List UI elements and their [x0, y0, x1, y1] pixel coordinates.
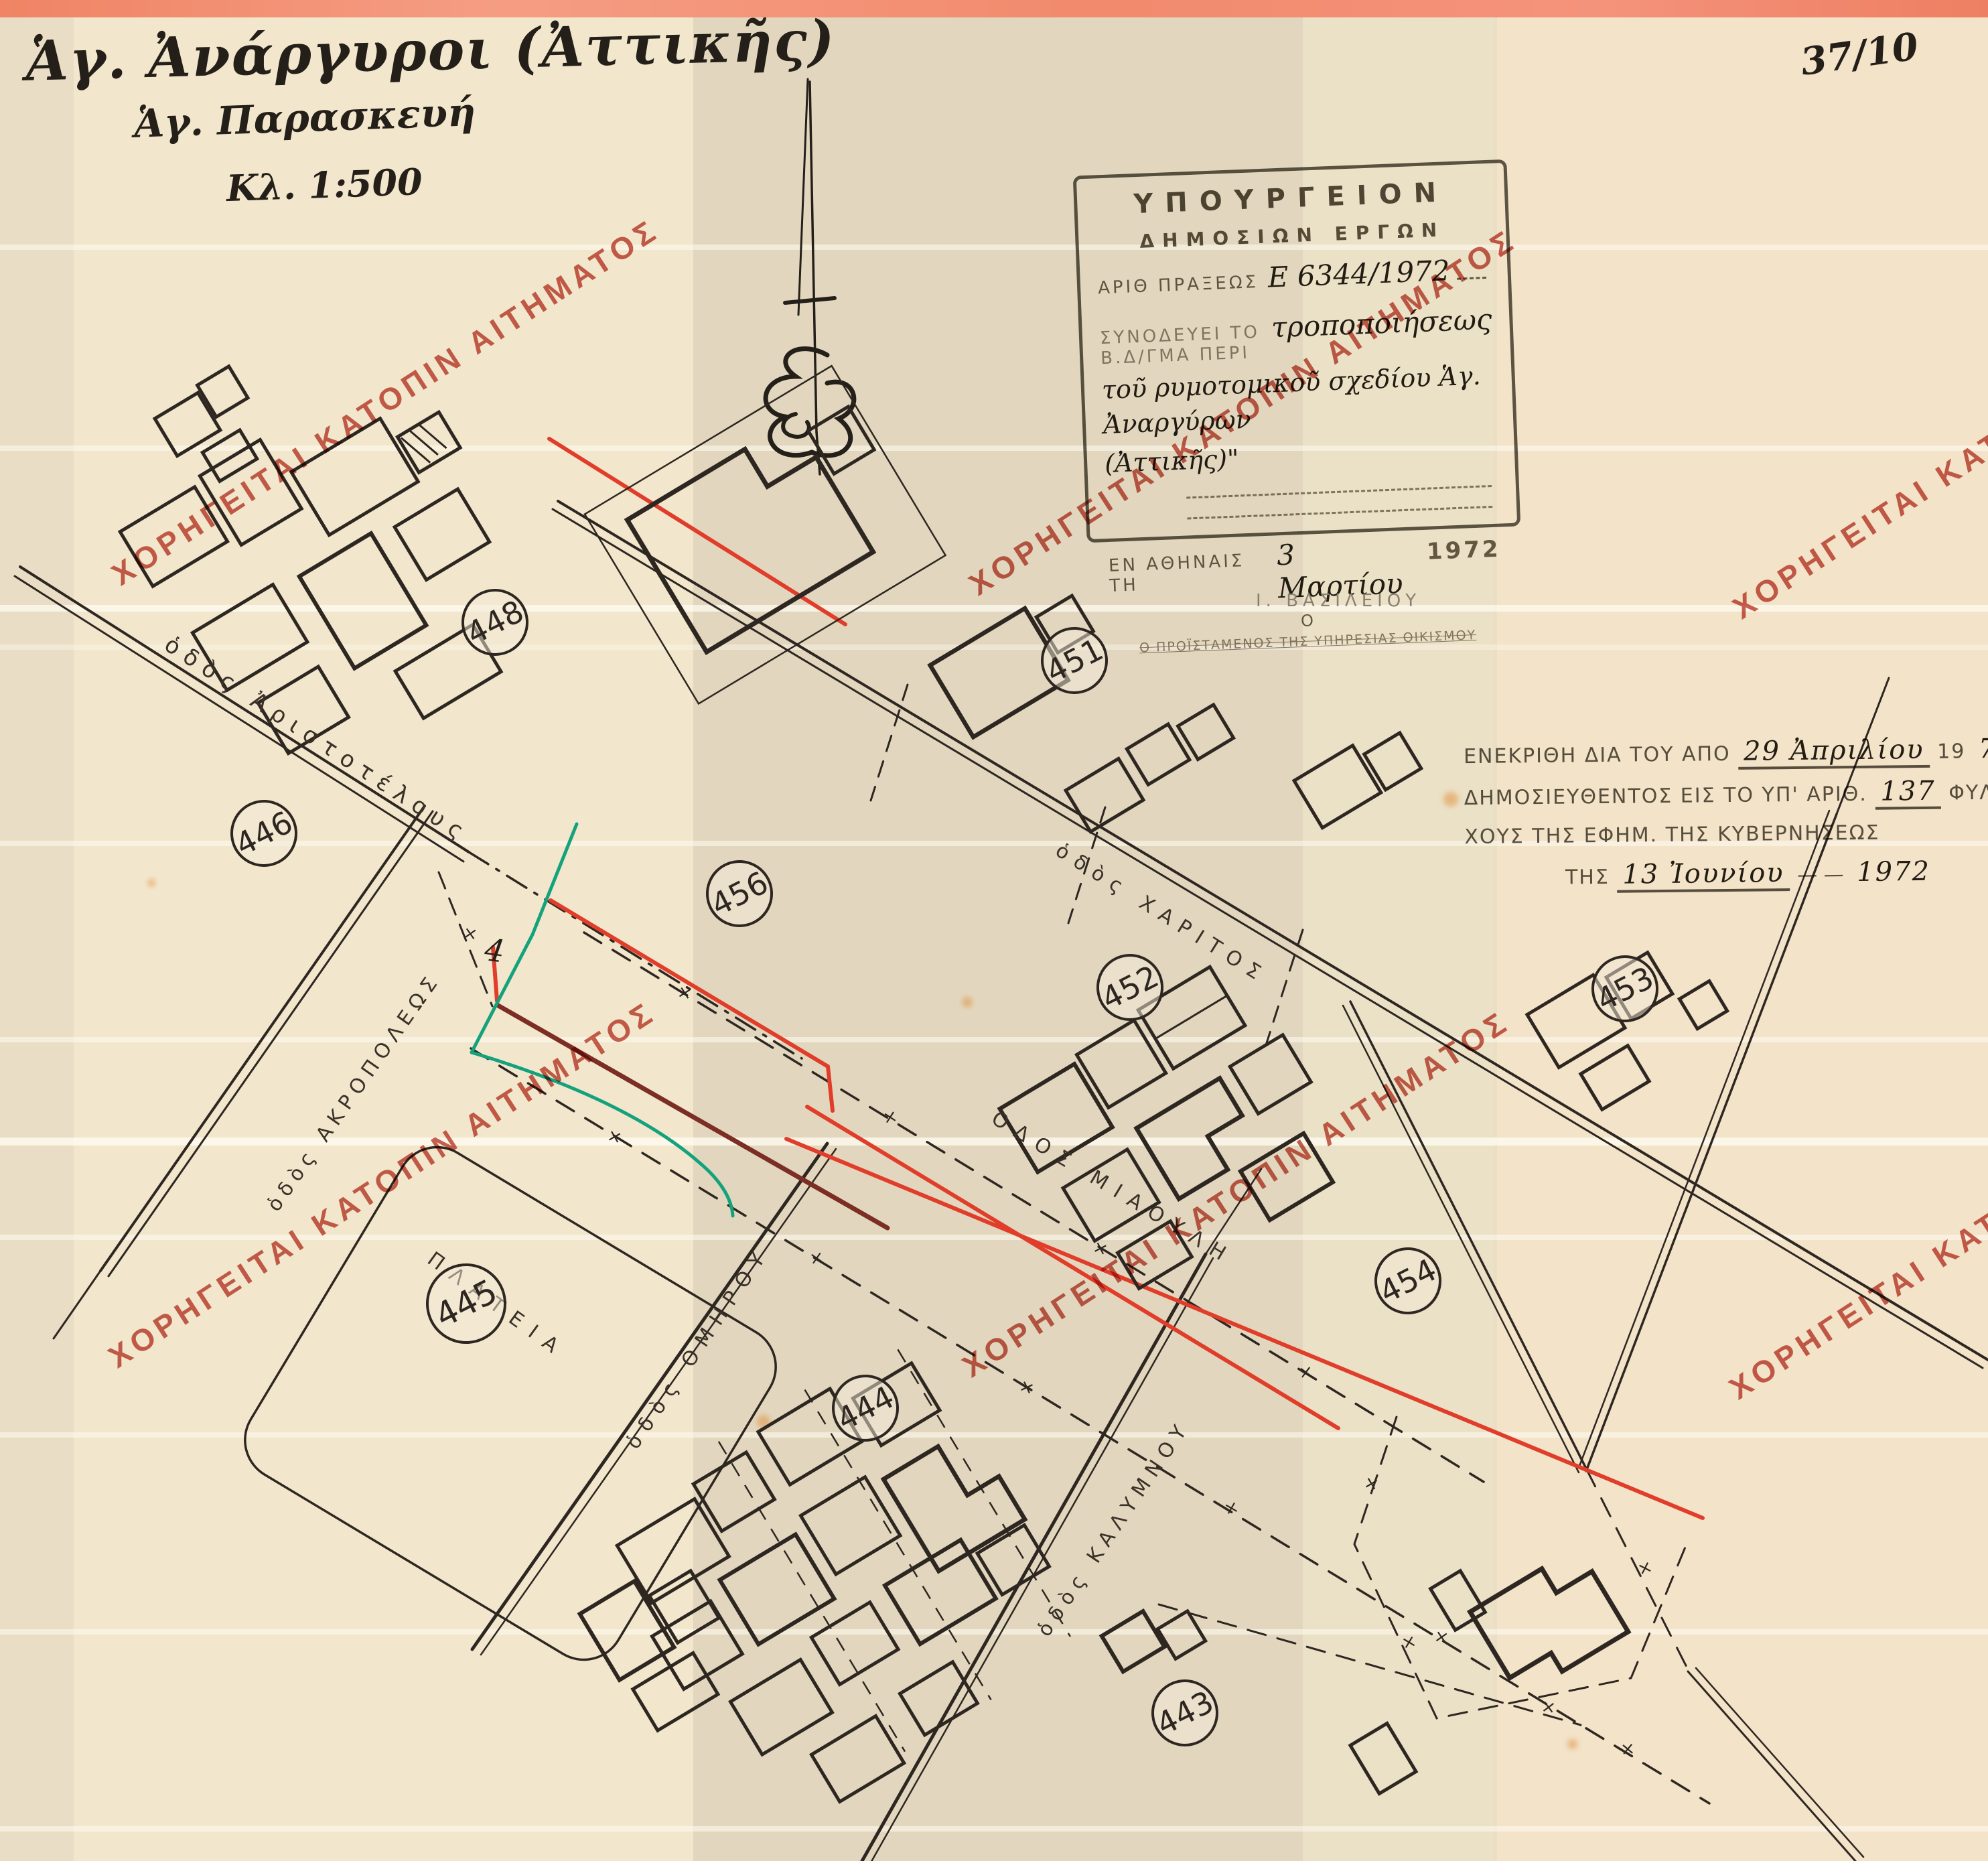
approval-line2-suffix: ΦΥΛΛΟΝ ΤΟΥ Δ' ΤΕΥ	[1948, 779, 1988, 805]
scanned-town-plan-sheet: × × × × × × × × × × × × × × ×	[0, 0, 1988, 1861]
svg-text:×: ×	[605, 1125, 624, 1149]
svg-text:×: ×	[1399, 1631, 1418, 1653]
stamp-act-label: ΑΡΙΘ ΠΡΑΞΕΩΣ	[1098, 272, 1259, 298]
svg-text:×: ×	[1620, 1738, 1636, 1760]
map-scale: Κλ. 1:500	[226, 160, 423, 210]
svg-text:×: ×	[1362, 1472, 1380, 1495]
svg-text:×: ×	[1222, 1497, 1241, 1520]
stamp-ministry-line: ΥΠΟΥΡΓΕΙΟΝ	[1094, 176, 1488, 221]
stamp-fill-line	[1186, 485, 1492, 499]
approval-line4-label: ΤΗΣ	[1565, 866, 1610, 890]
approval-year-handwritten: 72	[1973, 733, 1988, 764]
stamp-year-value: 1972	[1426, 536, 1501, 565]
approval-line2-label: ΔΗΜΟΣΙΕΥΘΕΝΤΟΣ ΕΙΣ ΤΟ ΥΠ' ΑΡΙΘ.	[1464, 782, 1867, 810]
street-lines	[15, 501, 1988, 1861]
approval-date2-handwritten: 13 Ἰουνίου	[1617, 857, 1790, 893]
map-linework: × × × × × × × × × × × × × × ×	[0, 0, 1988, 1861]
stamp-place-label: ΕΝ ΑΘΗΝΑΙΣ ΤΗ	[1109, 550, 1269, 596]
approval-gazette-number-handwritten: 137	[1875, 776, 1941, 810]
stamp-department-line: ΔΗΜΟΣΙΩΝ ΕΡΓΩΝ	[1096, 217, 1489, 254]
svg-text:×: ×	[881, 1106, 900, 1129]
dark-red-line	[497, 1005, 887, 1228]
approval-year2-handwritten: 1972	[1851, 856, 1936, 888]
north-arrow	[766, 79, 854, 474]
stamp-fill-line	[1187, 506, 1492, 520]
svg-text:×: ×	[808, 1247, 826, 1269]
surveyor-stamp: Ι. ΒΑΣΙΛΕΙΟΥ	[1256, 591, 1421, 611]
svg-text:×: ×	[461, 922, 480, 945]
approval-line1-label: ΕΝΕΚΡΙΘΗ ΔΙΑ ΤΟΥ ΑΠΟ	[1464, 742, 1731, 768]
stamp-accompanies-label: ΣΥΝΟΔΕΥΕΙ ΤΟ Β.Δ/ΓΜΑ ΠΕΡΙ	[1099, 322, 1263, 368]
approval-year-prefix: 19	[1937, 740, 1966, 763]
svg-text:×: ×	[1540, 1696, 1557, 1718]
approval-stamp: ΕΝΕΚΡΙΘΗ ΔΙΑ ΤΟΥ ΑΠΟ 29 Ἀπριλίου 19 72 Δ…	[1464, 728, 1988, 898]
svg-text:×: ×	[1297, 1361, 1315, 1383]
approval-date1-handwritten: 29 Ἀπριλίου	[1738, 734, 1930, 770]
svg-text:×: ×	[1017, 1375, 1038, 1399]
approval-line3: ΧΟΥΣ ΤΗΣ ΕΦΗΜ. ΤΗΣ ΚΥΒΕΡΝΗΣΕΩΣ	[1464, 811, 1988, 857]
svg-text:×: ×	[1635, 1556, 1655, 1580]
